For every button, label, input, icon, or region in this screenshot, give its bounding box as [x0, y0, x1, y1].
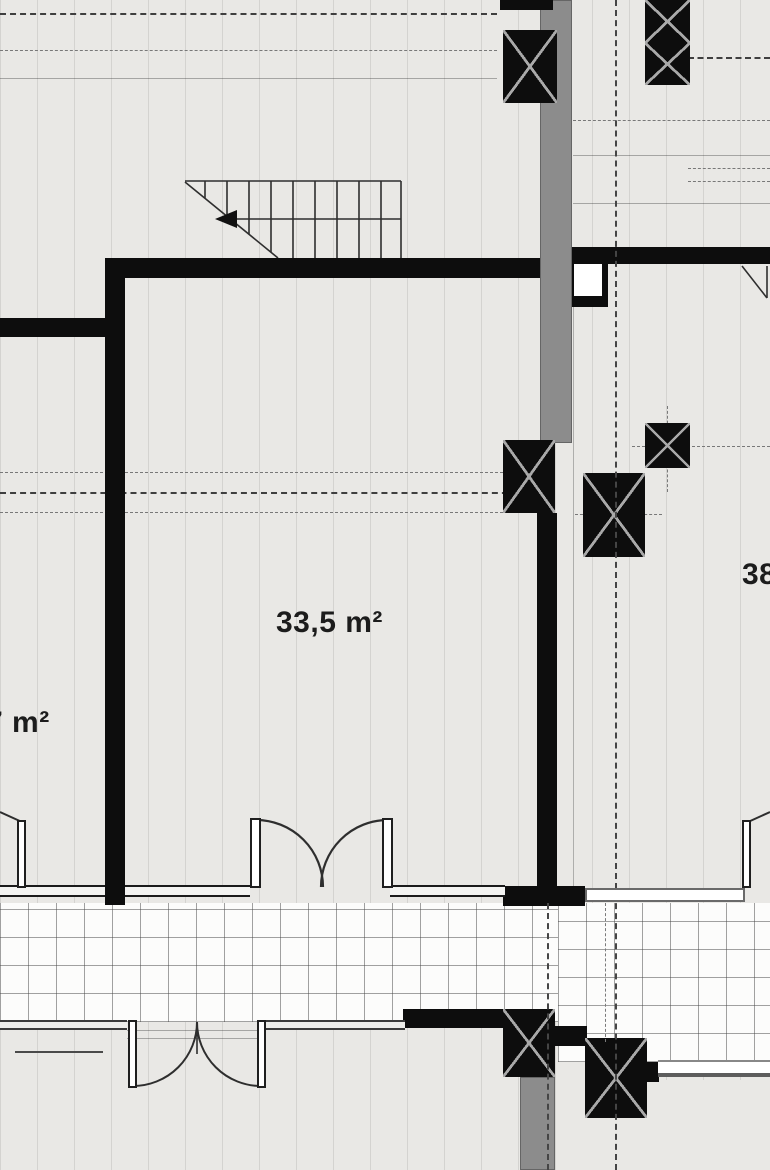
door-leaf-center-right [382, 818, 393, 888]
window-band-bottom-right [658, 1060, 770, 1077]
wall-room-divider [537, 513, 557, 905]
axis-line-right-3 [688, 168, 770, 169]
beam-dash-line-3 [0, 512, 538, 513]
door-leaf-right-room [742, 820, 751, 888]
wall-left-room-top [0, 318, 112, 337]
door-leaf-bottom-right [257, 1020, 266, 1088]
door-leaf-bottom-left [128, 1020, 137, 1088]
floor-plan-canvas: 33,5 m² 7 m² 38 [0, 0, 770, 1170]
stair-direction-arrow-icon [215, 210, 237, 228]
niche-opening [574, 264, 602, 296]
room-label-right: 38 [742, 558, 770, 592]
column-mid-left-icon [503, 440, 555, 513]
window-band-right-room [585, 888, 745, 902]
door-leaf-center-left [250, 818, 261, 888]
beam-dash-line-1 [0, 472, 538, 473]
floor-line-right-1 [573, 155, 770, 156]
column-mid-right-icon [645, 423, 690, 468]
axis-line-right-2 [573, 120, 770, 121]
column-mid-large-icon [583, 473, 645, 557]
ceiling-line-top [0, 78, 497, 79]
wall-room-left [105, 258, 125, 905]
right-room-edge-line [573, 264, 574, 888]
axis-line-vertical-main [615, 0, 617, 1170]
lower-step-line [15, 1051, 103, 1053]
axis-line-vertical-terrace-2 [605, 903, 606, 1042]
wall-bottom-stub [503, 886, 585, 906]
window-band-center-2 [390, 885, 505, 897]
wall-lower-left [403, 1009, 503, 1028]
concrete-wall-bottom [520, 1077, 555, 1170]
wall-lower-connector [553, 1026, 587, 1046]
door-double-center [248, 816, 396, 890]
door-double-bottom [124, 1018, 270, 1090]
lower-wall-band-2 [265, 1020, 405, 1030]
door-right-top [740, 262, 770, 302]
floor-line-right-2 [573, 203, 770, 204]
axis-line-top-2 [0, 50, 497, 51]
axis-line-right-1 [688, 57, 770, 59]
column-top-icon [503, 30, 557, 103]
axis-line-top-1 [0, 13, 497, 15]
axis-line-vertical-terrace [547, 903, 549, 1170]
lower-wall-band-1 [0, 1020, 127, 1030]
wall-top-edge-stub [500, 0, 553, 10]
door-leaf-left-room [17, 820, 26, 888]
wall-room-top [112, 258, 540, 278]
room-label-center: 33,5 m² [276, 606, 383, 640]
axis-line-right-4 [688, 181, 770, 182]
room-label-left: 7 m² [0, 706, 50, 740]
column-top-right-icon [645, 0, 690, 85]
window-band-center-1 [125, 885, 250, 897]
beam-dash-line-2 [0, 492, 538, 494]
stairs [182, 172, 404, 260]
